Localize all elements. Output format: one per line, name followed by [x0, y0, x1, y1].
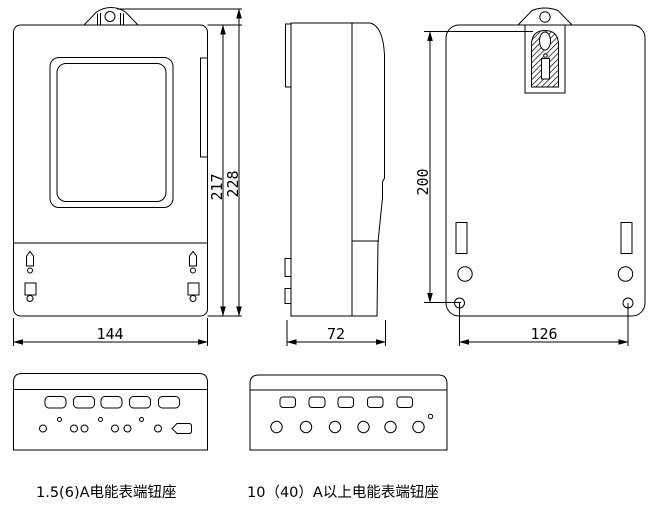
dim-depth-72: 72	[327, 325, 345, 343]
caption-terminal-block-small: 1.5(6)A电能表端钮座	[36, 484, 177, 501]
keyhole-pin-hole	[544, 54, 548, 58]
dim-hanger-to-holes-200: 200	[414, 168, 432, 195]
drawing-canvas: 144 217 228 72	[0, 0, 663, 508]
keyhole-lower-slot	[542, 59, 550, 80]
dim-overall-height-228: 228	[224, 170, 242, 197]
dim-width-144: 144	[96, 325, 123, 343]
dim-hole-spacing-126: 126	[530, 325, 557, 343]
meter-dimension-drawing: 144 217 228 72	[0, 0, 663, 508]
keyhole-top-slot	[540, 32, 551, 50]
caption-terminal-block-large: 10（40）A以上电能表端钮座	[247, 484, 439, 501]
